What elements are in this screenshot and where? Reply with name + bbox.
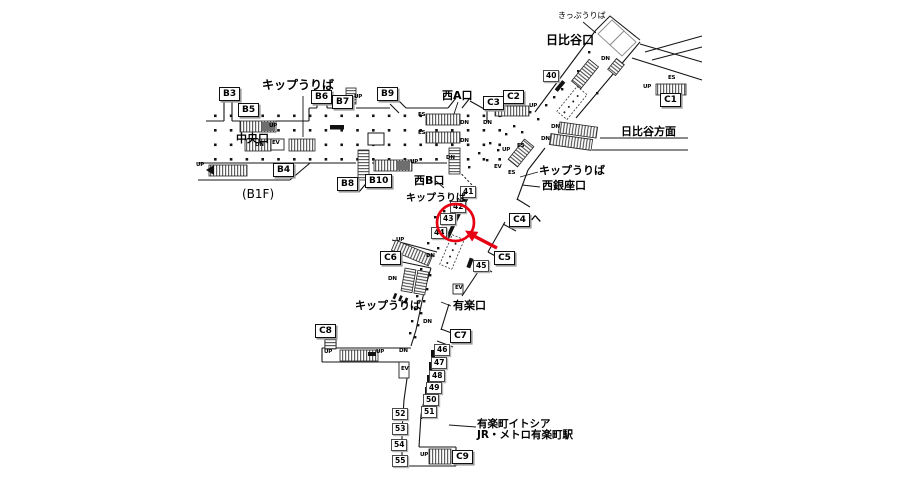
direction-label-up-0: UP <box>196 163 204 169</box>
yuraku-exit: 有楽口 <box>453 300 486 311</box>
direction-label-dn-17: DN <box>601 57 610 63</box>
yurakucho-itocia: 有楽町イトシア <box>477 419 551 430</box>
west-ginza-exit: 西銀座口 <box>542 180 586 191</box>
exit-C5: C5 <box>494 251 515 265</box>
position-45: 45 <box>473 260 489 272</box>
direction-label-dn-15: DN <box>551 125 560 131</box>
direction-label-up-8: UP <box>376 350 384 356</box>
direction-label-dn-18: DN <box>426 254 435 260</box>
position-44: 44 <box>431 227 447 239</box>
direction-label-up-10: UP <box>502 148 510 154</box>
direction-label-dn-16: DN <box>541 137 550 143</box>
jr-metro-yurakucho: JR・メトロ有楽町駅 <box>477 430 573 441</box>
west-b-exit: 西B口 <box>414 175 444 186</box>
position-40: 40 <box>543 70 559 82</box>
direction-label-dn-14: DN <box>446 156 455 162</box>
position-43: 43 <box>440 213 456 225</box>
exit-B10: B10 <box>365 174 392 188</box>
direction-label-up-7: UP <box>324 350 332 356</box>
position-55: 55 <box>392 455 408 467</box>
exit-C3: C3 <box>483 96 504 110</box>
hibiya-direction: 日比谷方面 <box>621 126 676 137</box>
exit-B4: B4 <box>273 163 294 177</box>
exit-C4: C4 <box>509 213 530 227</box>
ticket-office-mid: キップうりば <box>406 194 466 204</box>
exit-C2: C2 <box>503 90 524 104</box>
direction-label-es-23: ES <box>418 113 425 119</box>
direction-label-ev-30: EV <box>455 286 463 292</box>
direction-label-up-3: UP <box>410 160 418 166</box>
direction-label-dn-21: DN <box>399 349 408 355</box>
exit-B8: B8 <box>337 177 358 191</box>
station-map: B3B5B6B7B9C3C2C1B4B8B10C4へC5C6C7C8C94041… <box>0 0 919 491</box>
central-exit: 中央口 <box>236 133 269 144</box>
hibiya-exit: 日比谷口 <box>546 34 594 46</box>
direction-label-es-27: ES <box>508 171 515 177</box>
direction-label-dn-19: DN <box>388 277 397 283</box>
exit-B9: B9 <box>377 87 398 101</box>
direction-label-dn-22: DN <box>255 143 264 149</box>
map-labels: B3B5B6B7B9C3C2C1B4B8B10C4へC5C6C7C8C94041… <box>0 0 919 491</box>
direction-label-es-26: ES <box>517 144 524 150</box>
exit-B7: B7 <box>332 95 353 109</box>
position-54: 54 <box>391 439 407 451</box>
floor-label: (B1F) <box>242 188 274 200</box>
direction-label-dn-12: DN <box>460 121 469 127</box>
position-50: 50 <box>423 394 439 406</box>
direction-label-up-9: UP <box>420 453 428 459</box>
direction-label-dn-20: DN <box>423 320 432 326</box>
position-47: 47 <box>431 357 447 369</box>
exit-C8: C8 <box>315 324 336 338</box>
direction-label-up-5: UP <box>643 85 651 91</box>
exit-C6: C6 <box>380 251 401 265</box>
direction-label-ev-29: EV <box>494 165 502 171</box>
exit-B3: B3 <box>219 87 240 101</box>
west-a-exit: 西A口 <box>442 90 473 101</box>
position-49: 49 <box>426 382 442 394</box>
direction-label-es-25: ES <box>668 76 675 82</box>
exit-C7: C7 <box>450 329 471 343</box>
position-48: 48 <box>429 370 445 382</box>
position-52: 52 <box>392 408 408 420</box>
position-46: 46 <box>434 344 450 356</box>
direction-label-ev-28: EV <box>272 141 280 147</box>
direction-label-up-4: UP <box>529 104 537 110</box>
direction-label-dn-11: DN <box>483 121 492 127</box>
ticket-office-east: キップうりば <box>539 165 605 176</box>
position-51: 51 <box>421 406 437 418</box>
ticket-office-top: きっぷうりば <box>558 12 606 20</box>
ticket-office-west: キップうりば <box>262 79 334 91</box>
ticket-office-south: キップうりば <box>355 300 421 311</box>
direction-label-up-6: UP <box>396 238 404 244</box>
exit-C1: C1 <box>660 93 681 107</box>
direction-label-up-2: UP <box>354 95 362 101</box>
exit-B5: B5 <box>238 103 259 117</box>
exit-C9: C9 <box>452 450 473 464</box>
exit-B6: B6 <box>311 90 332 104</box>
direction-label-es-24: ES <box>418 131 425 137</box>
direction-label-ev-31: EV <box>401 367 409 373</box>
direction-label-dn-13: DN <box>460 139 469 145</box>
exit-C4-suffix: へ <box>531 215 541 225</box>
direction-label-up-1: UP <box>269 124 277 130</box>
position-53: 53 <box>392 423 408 435</box>
